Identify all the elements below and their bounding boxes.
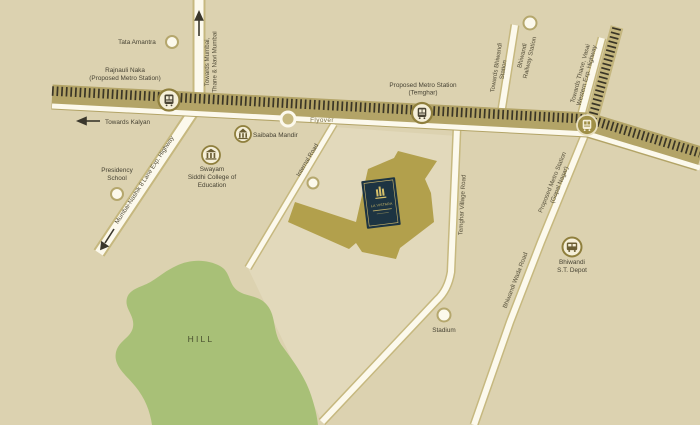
temghar-station-label-2: (Temghar) — [408, 90, 437, 97]
location-map: LA VISTARA — [0, 0, 700, 425]
flyover-label: Flyover — [310, 117, 334, 124]
swayam-college-label-2: Siddhi College of — [188, 174, 237, 181]
rajnauli-naka-label-2: (Proposed Metro Station) — [89, 75, 160, 82]
presidency-school-label-2: School — [107, 175, 127, 182]
college-icon — [202, 146, 220, 164]
towards-kalyan-label: Towards Kalyan — [105, 119, 151, 126]
hill-label: HILL — [188, 334, 215, 344]
towards-mumbai-label-2: Thane & Navi Mumbai — [212, 31, 219, 92]
presidency-school-marker — [111, 188, 123, 200]
roundabout-marker — [281, 112, 295, 126]
stadium-marker — [438, 309, 451, 322]
presidency-school-label-1: Presidency — [101, 167, 133, 174]
swayam-college-label-3: Education — [198, 182, 227, 189]
tata-amantra-label: Tata Amantra — [118, 39, 156, 46]
temghar-station-label-1: Proposed Metro Station — [389, 82, 457, 89]
rajnauli-naka-label-1: Rajnauli Naka — [105, 67, 145, 74]
metro-station-temghar-icon — [412, 103, 432, 123]
swayam-college-label-1: Swayam — [200, 166, 225, 173]
internal-road-marker — [308, 178, 319, 189]
saibaba-mandir-label: Saibaba Mandir — [253, 132, 299, 139]
bus-depot-icon — [563, 238, 582, 257]
tata-amantra-marker — [166, 36, 178, 48]
st-depot-label-2: S.T. Depot — [557, 267, 587, 274]
bhiwandi-railway-station-marker — [524, 17, 537, 30]
stadium-label: Stadium — [432, 327, 455, 334]
project-logo: LA VISTARA — [361, 177, 401, 229]
towards-mumbai-label-1: Towards Mumbai, — [204, 37, 211, 86]
st-depot-label-1: Bhiwandi — [559, 259, 585, 266]
metro-station-rajnauli-icon — [159, 90, 180, 111]
metro-station-gopal-nagar-icon — [577, 115, 597, 135]
saibaba-mandir-icon — [235, 126, 251, 142]
